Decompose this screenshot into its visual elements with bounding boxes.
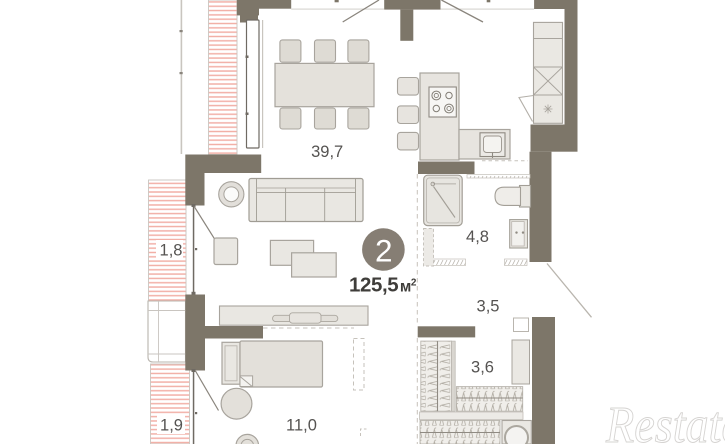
svg-text:1,9: 1,9: [160, 417, 183, 435]
svg-text:4,8: 4,8: [466, 228, 489, 246]
svg-text:39,7: 39,7: [311, 143, 343, 161]
svg-text:2: 2: [375, 233, 393, 269]
svg-text:11,0: 11,0: [286, 417, 317, 435]
svg-text:3,6: 3,6: [471, 359, 494, 377]
svg-text:3,5: 3,5: [477, 298, 500, 316]
svg-text:Restate: Restate: [605, 397, 725, 444]
svg-text:1,8: 1,8: [160, 242, 183, 260]
